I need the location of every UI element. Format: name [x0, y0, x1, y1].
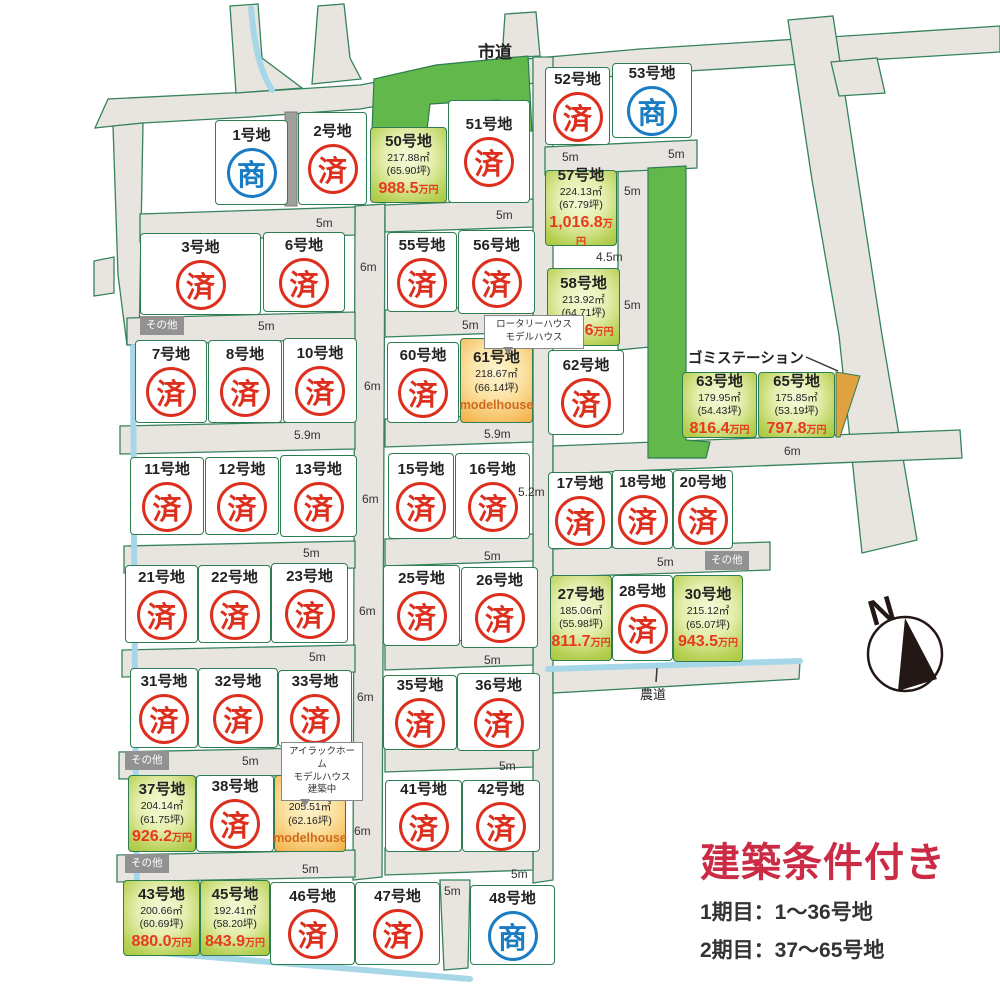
lot-41号地: 41号地済: [385, 780, 462, 852]
sold-stamp: 済: [373, 909, 423, 959]
lot-name: 62号地: [563, 357, 610, 375]
lot-21号地: 21号地済: [125, 565, 198, 643]
road-width-label: 5.9m: [294, 428, 321, 442]
lot-63号地: 63号地179.95㎡(54.43坪)816.4万円: [682, 372, 757, 438]
lot-60号地: 60号地済: [387, 342, 459, 423]
road-west-vertical: [113, 123, 143, 345]
price-value: 880.0: [131, 933, 171, 950]
lot-name: 45号地: [212, 886, 259, 904]
lot-map: N 1号地商2号地済50号地217.88㎡(65.90坪)988.5万円51号地…: [0, 0, 1000, 1000]
lot-price: 988.5万円: [378, 180, 438, 198]
sold-stamp: 済: [176, 260, 226, 310]
sold-stamp: 済: [220, 367, 270, 417]
north-compass: N: [863, 587, 942, 691]
legend-title: 建築条件付き: [700, 830, 980, 888]
road-width-label: 6m: [360, 260, 377, 274]
lot-name: 53号地: [629, 65, 676, 83]
lot-7号地: 7号地済: [135, 340, 207, 423]
lot-42号地: 42号地済: [462, 780, 540, 852]
callout-line: 建築中: [286, 784, 358, 797]
diagonal-road-branch: [831, 58, 885, 96]
lot-57号地: 57号地224.13㎡(67.79坪)1,016.8万円: [545, 170, 617, 246]
callout: ロータリーハウスモデルハウス: [484, 315, 584, 349]
other-badge: その他: [140, 316, 184, 335]
callout-line: モデルハウス: [286, 772, 358, 785]
lot-name: 8号地: [226, 346, 264, 364]
lot-tsubo: (62.16坪): [288, 815, 332, 828]
lot-name: 20号地: [680, 474, 727, 492]
lot-30号地: 30号地215.12㎡(65.07坪)943.5万円: [673, 575, 743, 662]
lot-area: 192.41㎡: [214, 905, 257, 918]
road-width-label: 5m: [302, 862, 319, 876]
lot-name: 16号地: [469, 461, 516, 479]
legend: 建築条件付き 1期目：1〜36号地 2期目：37〜65号地: [700, 830, 980, 964]
callout-line: アイラックホーム: [286, 746, 358, 772]
price-value: 811.7: [551, 633, 590, 650]
lot-name: 37号地: [139, 781, 186, 799]
lot-name: 47号地: [374, 888, 421, 906]
lot-name: 46号地: [289, 888, 336, 906]
lot-name: 17号地: [557, 475, 604, 493]
lot-tsubo: (65.90坪): [387, 165, 431, 178]
lot-tsubo: (58.20坪): [213, 918, 257, 931]
lot-tsubo: (60.69坪): [140, 918, 184, 931]
lot-price: 843.9万円: [205, 933, 265, 951]
sold-stamp: 済: [561, 378, 611, 428]
road-width-label: 6m: [354, 824, 371, 838]
road-width-label: 5m: [624, 298, 641, 312]
road-stub-north-2: [312, 4, 361, 84]
lot-name: 52号地: [554, 71, 601, 89]
price-unit: 万円: [718, 638, 738, 649]
farm-road-label: 農道: [640, 684, 666, 703]
sold-stamp: 済: [210, 590, 260, 640]
price-unit: 万円: [807, 425, 827, 436]
lot-65号地: 65号地175.85㎡(53.19坪)797.8万円: [758, 372, 835, 438]
negotiating-stamp: 商: [227, 148, 277, 198]
callout: アイラックホームモデルハウス建築中: [281, 742, 363, 801]
road-width-label: 5m: [242, 754, 259, 768]
sold-stamp: 済: [468, 482, 518, 532]
lot-area: 185.06㎡: [560, 605, 603, 618]
lot-11号地: 11号地済: [130, 457, 204, 535]
lot-price: 797.8万円: [766, 420, 826, 438]
lot-15号地: 15号地済: [388, 453, 454, 539]
sold-stamp: 済: [555, 496, 605, 546]
other-badge: その他: [125, 751, 169, 770]
price-unit: 万円: [245, 938, 265, 949]
lot-36号地: 36号地済: [457, 673, 540, 751]
lot-62号地: 62号地済: [548, 350, 624, 435]
sold-stamp: 済: [396, 482, 446, 532]
lot-51号地: 51号地済: [448, 100, 530, 203]
lot-name: 13号地: [295, 461, 342, 479]
lot-price: 1,016.8万円: [546, 214, 616, 249]
lot-17号地: 17号地済: [548, 472, 612, 549]
road-width-label: 6m: [364, 379, 381, 393]
lot-1号地: 1号地商: [215, 120, 288, 205]
lot-name: 35号地: [397, 677, 444, 695]
lot-area: 204.14㎡: [141, 800, 184, 813]
lot-price: 816.4万円: [689, 420, 749, 438]
lot-50号地: 50号地217.88㎡(65.90坪)988.5万円: [370, 127, 447, 203]
lot-name: 22号地: [211, 569, 258, 587]
lot-61号地: 61号地218.67㎡(66.14坪)modelhouse: [460, 338, 533, 423]
price-unit: 万円: [591, 638, 611, 649]
negotiating-stamp: 商: [627, 86, 677, 136]
garbage-station-label: ゴミステーション: [688, 347, 804, 368]
price-value: 816.4: [689, 420, 729, 437]
lot-23号地: 23号地済: [271, 563, 348, 643]
lot-47号地: 47号地済: [355, 882, 440, 965]
sold-stamp: 済: [397, 258, 447, 308]
lot-name: 60号地: [400, 347, 447, 365]
lot-area: 205.51㎡: [289, 801, 332, 814]
sold-stamp: 済: [678, 495, 728, 545]
price-value: 988.5: [378, 180, 418, 197]
lot-27号地: 27号地185.06㎡(55.98坪)811.7万円: [550, 575, 612, 661]
modelhouse-label: modelhouse: [273, 831, 347, 845]
road-width-label: 5m: [496, 208, 513, 222]
sold-stamp: 済: [146, 367, 196, 417]
road-width-label: 5m: [484, 653, 501, 667]
north-label: N: [863, 587, 899, 634]
lot-name: 12号地: [219, 461, 266, 479]
lot-3号地: 3号地済: [140, 233, 261, 315]
lot-name: 43号地: [138, 886, 185, 904]
road-width-label: 4.5m: [596, 250, 623, 264]
price-unit: 万円: [172, 938, 192, 949]
road-width-label: 6m: [359, 604, 376, 618]
lot-6号地: 6号地済: [263, 232, 345, 312]
road-width-label: 5m: [316, 216, 333, 230]
lot-35号地: 35号地済: [383, 675, 457, 750]
lot-43号地: 43号地200.66㎡(60.69坪)880.0万円: [123, 880, 200, 956]
price-value: 926.2: [132, 828, 172, 845]
lot-name: 1号地: [232, 127, 270, 145]
lot-46号地: 46号地済: [270, 882, 355, 965]
lot-name: 65号地: [773, 373, 820, 391]
lot-price: 943.5万円: [678, 633, 738, 651]
lot-name: 23号地: [286, 568, 333, 586]
road-width-label: 5m: [499, 759, 516, 773]
road-width-label: 6m: [784, 444, 801, 458]
sold-stamp: 済: [290, 694, 340, 744]
callout-line: モデルハウス: [489, 332, 579, 345]
lot-name: 31号地: [141, 673, 188, 691]
road-west-stub: [94, 257, 114, 296]
road-width-label: 6m: [362, 492, 379, 506]
lot-name: 57号地: [558, 167, 605, 185]
lot-name: 48号地: [489, 890, 536, 908]
lot-area: 213.92㎡: [562, 294, 605, 307]
sold-stamp: 済: [395, 698, 445, 748]
sold-stamp: 済: [308, 144, 358, 194]
sold-stamp: 済: [397, 591, 447, 641]
lot-price: 880.0万円: [131, 933, 191, 951]
lot-tsubo: (67.79坪): [559, 199, 603, 212]
lot-name: 26号地: [476, 572, 523, 590]
lot-10号地: 10号地済: [283, 338, 357, 423]
sold-stamp: 済: [137, 590, 187, 640]
lot-53号地: 53号地商: [612, 63, 692, 138]
lot-area: 217.88㎡: [387, 152, 430, 165]
callout-line: ロータリーハウス: [489, 319, 579, 332]
road-width-label: 5m: [511, 867, 528, 881]
road-width-label: 6m: [357, 690, 374, 704]
lot-name: 42号地: [478, 781, 525, 799]
other-badge: その他: [125, 854, 169, 873]
lot-38号地: 38号地済: [196, 775, 274, 852]
lot-45号地: 45号地192.41㎡(58.20坪)843.9万円: [200, 880, 270, 956]
lot-37号地: 37号地204.14㎡(61.75坪)926.2万円: [128, 775, 196, 852]
lot-name: 51号地: [466, 116, 513, 134]
lot-13号地: 13号地済: [280, 455, 357, 537]
sold-stamp: 済: [464, 137, 514, 187]
lot-tsubo: (66.14坪): [475, 382, 519, 395]
farm-road-tick: [656, 668, 657, 682]
lot-26号地: 26号地済: [461, 567, 538, 648]
diagonal-road-east: [788, 16, 917, 553]
road-width-label: 5m: [309, 650, 326, 664]
lot-56号地: 56号地済: [458, 230, 535, 314]
road-width-label: 5m: [462, 318, 479, 332]
price-value: 843.9: [205, 933, 245, 950]
lot-name: 27号地: [558, 586, 605, 604]
sold-stamp: 済: [472, 258, 522, 308]
road-width-label: 5m: [657, 555, 674, 569]
lot-name: 41号地: [400, 781, 447, 799]
sold-stamp: 済: [476, 802, 526, 851]
lot-name: 3号地: [181, 239, 219, 257]
price-unit: 万円: [419, 185, 439, 196]
lot-name: 33号地: [292, 673, 339, 691]
lot-area: 224.13㎡: [560, 186, 603, 199]
price-unit: 万円: [172, 833, 192, 844]
sold-stamp: 済: [139, 694, 189, 744]
lot-price: 811.7万円: [551, 633, 610, 651]
lot-area: 200.66㎡: [140, 905, 183, 918]
lot-25号地: 25号地済: [383, 565, 460, 646]
lot-32号地: 32号地済: [198, 668, 278, 748]
lot-name: 58号地: [560, 275, 607, 293]
lot-31号地: 31号地済: [130, 668, 198, 748]
lot-price: 926.2万円: [132, 828, 192, 846]
road-width-label: 5.2m: [518, 485, 545, 499]
sold-stamp: 済: [618, 604, 668, 654]
sold-stamp: 済: [213, 694, 263, 744]
road-width-label: 5m: [624, 184, 641, 198]
road-width-label: 5m: [484, 549, 501, 563]
lot-20号地: 20号地済: [673, 470, 733, 549]
price-value: 797.8: [766, 420, 806, 437]
sold-stamp: 済: [398, 368, 448, 418]
lot-28号地: 28号地済: [612, 575, 673, 661]
lot-name: 32号地: [215, 673, 262, 691]
lot-tsubo: (65.07坪): [686, 619, 730, 632]
lot-12号地: 12号地済: [205, 457, 279, 535]
lot-55号地: 55号地済: [387, 232, 457, 312]
other-badge: その他: [705, 551, 749, 570]
lot-22号地: 22号地済: [198, 565, 271, 643]
lot-name: 30号地: [685, 586, 732, 604]
city-road-label: 市道: [478, 38, 512, 63]
sold-stamp: 済: [618, 495, 668, 545]
lot-name: 50号地: [385, 133, 432, 151]
negotiating-stamp: 商: [488, 911, 538, 961]
road-width-label: 5.9m: [484, 427, 511, 441]
lot-area: 218.67㎡: [475, 368, 518, 381]
sold-stamp: 済: [288, 909, 338, 959]
sold-stamp: 済: [399, 802, 449, 851]
price-value: 943.5: [678, 633, 718, 650]
lot-2号地: 2号地済: [298, 112, 367, 205]
lot-name: 11号地: [144, 461, 190, 479]
price-unit: 万円: [594, 327, 614, 338]
road-width-label: 5m: [668, 147, 685, 161]
road-width-label: 5m: [258, 319, 275, 333]
lot-name: 10号地: [297, 345, 344, 363]
lot-8号地: 8号地済: [208, 340, 282, 423]
lot-33号地: 33号地済: [278, 670, 352, 747]
road-width-label: 5m: [444, 884, 461, 898]
lot-name: 7号地: [152, 346, 190, 364]
sold-stamp: 済: [295, 366, 345, 416]
lot-area: 175.85㎡: [775, 392, 818, 405]
legend-phase2: 2期目：37〜65号地: [700, 934, 980, 964]
lot-name: 38号地: [212, 778, 259, 796]
lot-name: 2号地: [313, 123, 351, 141]
lot-name: 55号地: [399, 237, 446, 255]
sold-stamp: 済: [279, 258, 329, 308]
lot-name: 21号地: [138, 569, 185, 587]
sold-stamp: 済: [294, 482, 344, 532]
lot-tsubo: (53.19坪): [775, 405, 819, 418]
sold-stamp: 済: [142, 482, 192, 532]
lot-tsubo: (54.43坪): [698, 405, 742, 418]
sold-stamp: 済: [285, 589, 335, 639]
price-value: 1,016.8: [549, 214, 602, 231]
lot-name: 15号地: [398, 461, 445, 479]
road-57-vertical: [618, 153, 650, 350]
lot-name: 36号地: [475, 677, 522, 695]
lot-name: 56号地: [473, 237, 520, 255]
lot-name: 63号地: [696, 373, 743, 391]
lot-48号地: 48号地商: [470, 885, 555, 965]
road-width-label: 5m: [562, 150, 579, 164]
lot-name: 6号地: [285, 237, 323, 255]
sold-stamp: 済: [553, 92, 603, 142]
garbage-leader-line: [806, 357, 838, 371]
sold-stamp: 済: [217, 482, 267, 532]
sold-stamp: 済: [474, 698, 524, 748]
price-unit: 万円: [730, 425, 750, 436]
lot-name: 18号地: [619, 474, 666, 492]
sold-stamp: 済: [475, 593, 525, 643]
lot-name: 28号地: [619, 583, 666, 601]
modelhouse-label: modelhouse: [460, 398, 534, 412]
lot-name: 25号地: [398, 570, 445, 588]
lot-tsubo: (61.75坪): [140, 814, 184, 827]
lot-tsubo: (55.98坪): [559, 618, 603, 631]
lot-18号地: 18号地済: [612, 470, 673, 549]
lot-area: 179.95㎡: [698, 392, 741, 405]
road-width-label: 5m: [303, 546, 320, 560]
lot-52号地: 52号地済: [545, 67, 610, 145]
sold-stamp: 済: [210, 799, 260, 849]
lot-area: 215.12㎡: [687, 605, 730, 618]
legend-phase1: 1期目：1〜36号地: [700, 896, 980, 926]
